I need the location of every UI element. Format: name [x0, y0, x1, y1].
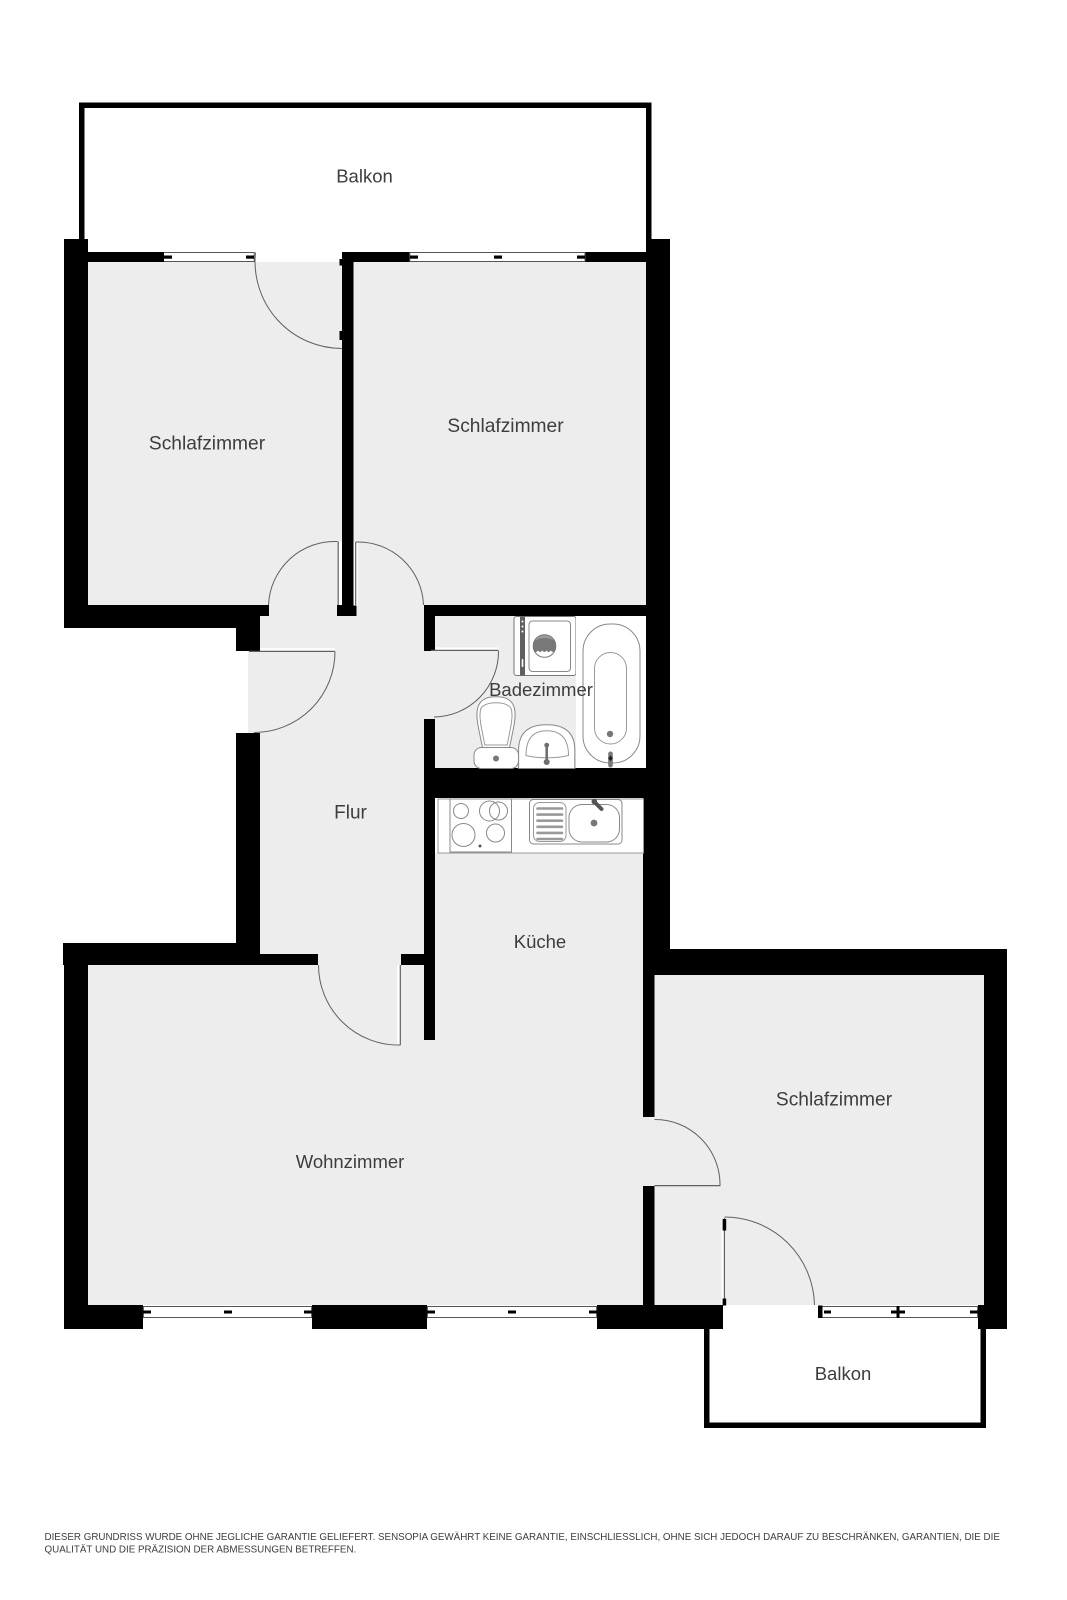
- svg-text:Badezimmer: Badezimmer: [489, 679, 593, 700]
- svg-text:Schlafzimmer: Schlafzimmer: [447, 416, 564, 437]
- svg-text:Küche: Küche: [514, 931, 566, 952]
- svg-text:Balkon: Balkon: [815, 1363, 872, 1384]
- svg-text:Flur: Flur: [334, 803, 367, 824]
- svg-text:Schlafzimmer: Schlafzimmer: [776, 1090, 893, 1111]
- svg-text:QUALITÄT UND DIE PRÄZISION DER: QUALITÄT UND DIE PRÄZISION DER ABMESSUNG…: [45, 1545, 357, 1556]
- svg-text:Wohnzimmer: Wohnzimmer: [296, 1151, 405, 1172]
- svg-text:DIESER GRUNDRISS WURDE OHNE JE: DIESER GRUNDRISS WURDE OHNE JEGLICHE GAR…: [45, 1532, 1001, 1543]
- svg-text:Schlafzimmer: Schlafzimmer: [149, 434, 266, 455]
- svg-text:Balkon: Balkon: [336, 166, 393, 187]
